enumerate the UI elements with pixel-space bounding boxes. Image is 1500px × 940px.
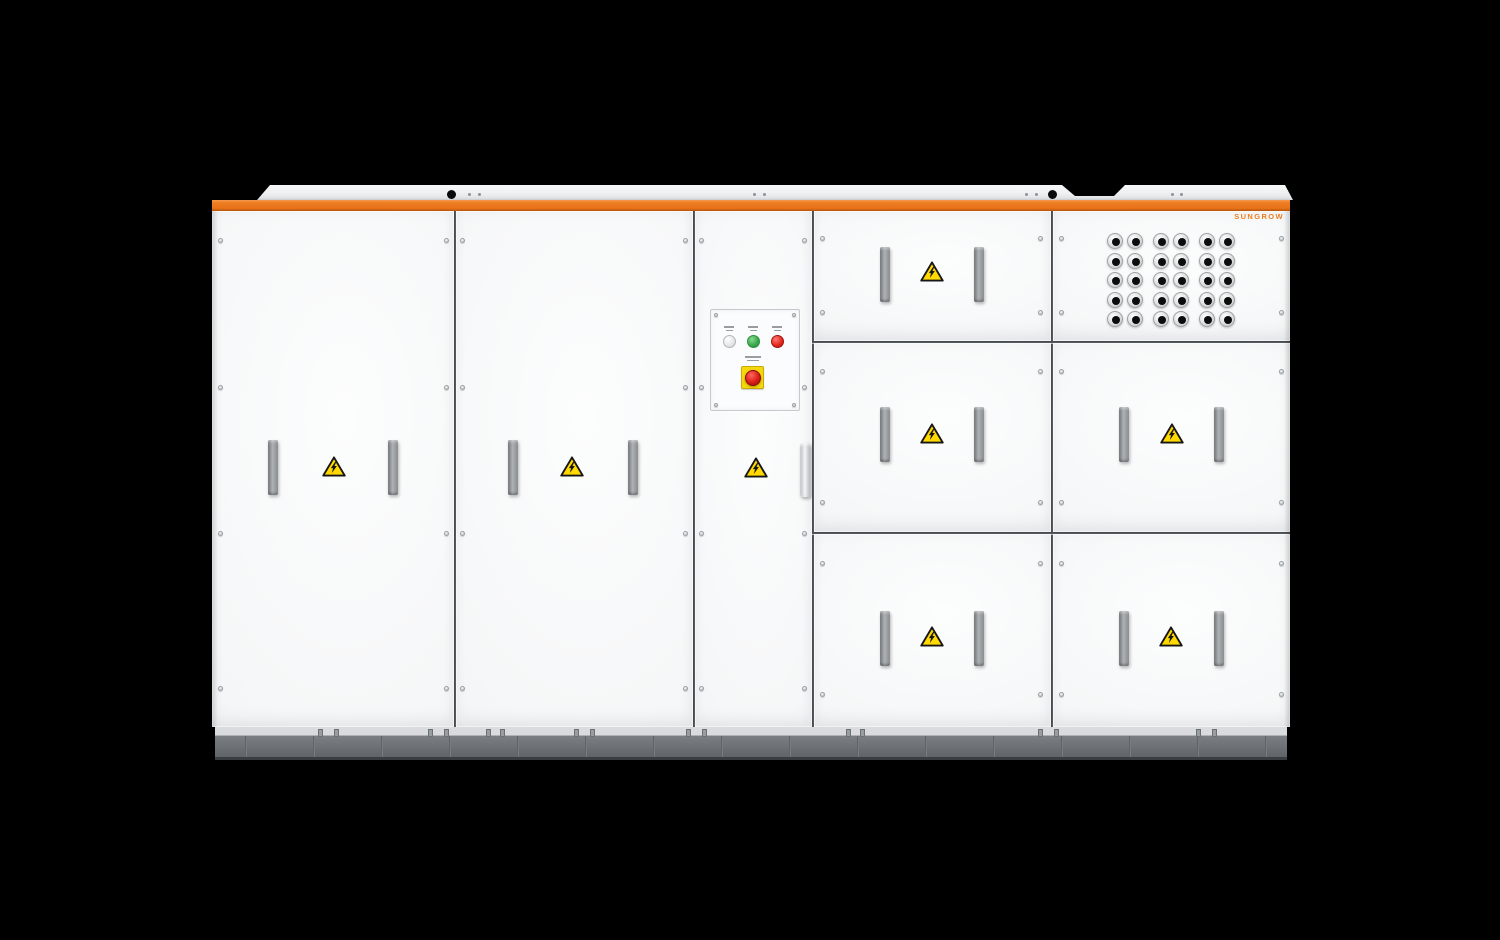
door-handle	[1214, 407, 1224, 462]
plinth-rib	[857, 736, 859, 757]
door-screw	[460, 531, 465, 536]
plinth-rib	[653, 736, 655, 757]
door-screw	[820, 561, 825, 566]
cable-gland	[1153, 233, 1169, 249]
cable-gland	[1199, 311, 1215, 327]
cable-gland-hole	[1158, 258, 1166, 266]
door-screw	[1038, 236, 1043, 241]
cable-gland	[1173, 253, 1189, 269]
cable-gland-hole	[1112, 277, 1120, 285]
lightning-bolt-icon	[920, 423, 944, 444]
cap-screw	[468, 193, 471, 196]
door-screw	[820, 310, 825, 315]
cable-gland	[1199, 292, 1215, 308]
cable-gland	[1219, 233, 1235, 249]
estop-label-microtext	[745, 356, 761, 358]
high-voltage-warning-sign	[744, 457, 768, 478]
high-voltage-warning-sign	[560, 456, 584, 477]
door-screw	[802, 686, 807, 691]
cable-gland-hole	[1132, 238, 1140, 246]
door-screw	[1059, 236, 1064, 241]
accent-stripe	[212, 200, 1290, 211]
door-screw	[683, 238, 688, 243]
product-render-stage: SUNGROW	[0, 0, 1500, 940]
control-panel-screw	[792, 403, 796, 407]
door-screw	[444, 531, 449, 536]
door-screw	[1059, 692, 1064, 697]
cable-gland	[1219, 253, 1235, 269]
door-seam-vertical	[693, 211, 695, 727]
indicator-label-microtext	[750, 330, 757, 331]
plinth-rib	[1197, 736, 1199, 757]
body-left-edge-shading	[212, 211, 218, 727]
door-seam-vertical	[812, 211, 814, 727]
cable-gland-hole	[1158, 297, 1166, 305]
cable-gland	[1219, 272, 1235, 288]
cap-screw	[1035, 193, 1038, 196]
door-screw	[820, 500, 825, 505]
cable-gland-hole	[1132, 258, 1140, 266]
control-panel-screw	[714, 313, 718, 317]
cap-screw	[753, 193, 756, 196]
door-seam-horizontal	[812, 532, 1290, 534]
door-screw	[1038, 561, 1043, 566]
door-screw	[218, 531, 223, 536]
cap-screw	[1180, 193, 1183, 196]
high-voltage-warning-sign	[1160, 423, 1184, 444]
plinth-rib	[993, 736, 995, 757]
door-screw	[820, 236, 825, 241]
lightning-bolt-icon	[560, 456, 584, 477]
indicator-label-microtext	[726, 330, 733, 331]
door-handle	[880, 611, 890, 666]
hinge-tab	[500, 729, 505, 737]
plinth-rib	[1129, 736, 1131, 757]
cable-gland-hole	[1204, 297, 1212, 305]
door-handle	[880, 247, 890, 302]
door-seam-horizontal	[812, 341, 1290, 343]
hinge-tab	[1038, 729, 1043, 737]
lifting-hole	[447, 190, 456, 199]
emergency-stop-button	[745, 370, 761, 386]
plinth-rib	[925, 736, 927, 757]
door-screw	[683, 385, 688, 390]
door-screw	[1038, 692, 1043, 697]
door-screw	[699, 686, 704, 691]
plinth-rib	[789, 736, 791, 757]
cable-gland-hole	[1112, 316, 1120, 324]
door-screw	[683, 686, 688, 691]
energy-storage-cabinet: SUNGROW	[0, 0, 1500, 940]
door-screw	[218, 385, 223, 390]
door-screw	[1038, 369, 1043, 374]
plinth-top-strip	[215, 727, 1287, 736]
plinth-rib	[313, 736, 315, 757]
door-screw	[218, 686, 223, 691]
door-screw	[820, 369, 825, 374]
door-latch-handle	[800, 443, 811, 497]
door-screw	[820, 692, 825, 697]
cable-gland-hole	[1178, 297, 1186, 305]
door-screw	[1059, 561, 1064, 566]
cable-gland-hole	[1224, 238, 1232, 246]
control-panel-screw	[792, 313, 796, 317]
cable-gland	[1153, 311, 1169, 327]
door-handle	[974, 407, 984, 462]
cable-gland	[1153, 292, 1169, 308]
cable-gland-hole	[1224, 297, 1232, 305]
door-seam-vertical	[454, 211, 456, 727]
cable-gland-hole	[1178, 258, 1186, 266]
roof-cap	[257, 185, 1293, 200]
base-plinth	[215, 736, 1287, 757]
lightning-bolt-icon	[744, 457, 768, 478]
indicator-label-microtext	[772, 326, 782, 328]
plinth-rib	[1061, 736, 1063, 757]
hinge-tab	[1054, 729, 1059, 737]
cable-gland	[1173, 233, 1189, 249]
door-handle	[1119, 407, 1129, 462]
cap-screw	[1025, 193, 1028, 196]
cap-screw	[763, 193, 766, 196]
cable-gland	[1107, 272, 1123, 288]
door-handle	[1119, 611, 1129, 666]
door-screw	[802, 531, 807, 536]
cable-gland	[1153, 253, 1169, 269]
high-voltage-warning-sign	[920, 626, 944, 647]
hinge-tab	[1212, 729, 1217, 737]
high-voltage-warning-sign	[920, 261, 944, 282]
hinge-tab	[590, 729, 595, 737]
cable-gland	[1219, 292, 1235, 308]
indicator-white	[723, 335, 736, 348]
cable-gland-hole	[1112, 297, 1120, 305]
door-screw	[444, 238, 449, 243]
lightning-bolt-icon	[322, 456, 346, 477]
plinth-rib	[585, 736, 587, 757]
brand-logo: SUNGROW	[1233, 212, 1284, 222]
cable-gland	[1127, 272, 1143, 288]
indicator-label-microtext	[748, 326, 758, 328]
plinth-rib	[721, 736, 723, 757]
cable-gland-hole	[1132, 277, 1140, 285]
hinge-tab	[846, 729, 851, 737]
door-screw	[218, 238, 223, 243]
cable-gland	[1107, 292, 1123, 308]
door-screw	[802, 238, 807, 243]
hinge-tab	[318, 729, 323, 737]
plinth-rib	[517, 736, 519, 757]
hinge-tab	[860, 729, 865, 737]
cable-gland	[1173, 311, 1189, 327]
cable-gland	[1127, 311, 1143, 327]
plinth-rib	[449, 736, 451, 757]
cable-gland-hole	[1132, 316, 1140, 324]
indicator-red	[771, 335, 784, 348]
door-screw	[1038, 500, 1043, 505]
cable-gland	[1199, 233, 1215, 249]
door-screw	[460, 385, 465, 390]
cable-gland	[1173, 292, 1189, 308]
cap-screw	[1171, 193, 1174, 196]
lightning-bolt-icon	[920, 261, 944, 282]
plinth-rib	[245, 736, 247, 757]
cable-gland-hole	[1204, 316, 1212, 324]
cable-gland	[1127, 292, 1143, 308]
cable-gland	[1153, 272, 1169, 288]
cable-gland-hole	[1204, 258, 1212, 266]
lightning-bolt-icon	[1160, 423, 1184, 444]
cable-gland-hole	[1204, 277, 1212, 285]
door-seam-vertical	[1051, 211, 1053, 727]
lifting-hole	[1048, 190, 1057, 199]
cable-gland-hole	[1178, 316, 1186, 324]
indicator-label-microtext	[774, 330, 781, 331]
door-screw	[444, 686, 449, 691]
high-voltage-warning-sign	[920, 423, 944, 444]
door-handle	[508, 440, 518, 495]
lightning-bolt-icon	[920, 626, 944, 647]
hinge-tab	[444, 729, 449, 737]
cable-gland	[1107, 311, 1123, 327]
right-top-gland-panel	[1051, 211, 1290, 341]
door-screw	[802, 385, 807, 390]
lightning-bolt-icon	[1159, 626, 1183, 647]
door-screw	[1059, 500, 1064, 505]
cable-gland-hole	[1204, 238, 1212, 246]
hinge-tab	[686, 729, 691, 737]
door-handle	[974, 611, 984, 666]
high-voltage-warning-sign	[322, 456, 346, 477]
body-right-edge-shading	[1284, 211, 1290, 727]
door-screw	[683, 531, 688, 536]
estop-label-microtext	[747, 360, 759, 361]
hinge-tab	[486, 729, 491, 737]
door-screw	[444, 385, 449, 390]
plinth-rib	[381, 736, 383, 757]
cable-gland-hole	[1112, 258, 1120, 266]
door-handle	[268, 440, 278, 495]
door-handle	[1214, 611, 1224, 666]
door-screw	[1059, 310, 1064, 315]
door-handle	[628, 440, 638, 495]
cable-gland	[1219, 311, 1235, 327]
cable-gland-hole	[1224, 258, 1232, 266]
cable-gland	[1173, 272, 1189, 288]
door-screw	[1059, 369, 1064, 374]
cable-gland-hole	[1178, 277, 1186, 285]
cable-gland	[1107, 253, 1123, 269]
cable-gland	[1107, 233, 1123, 249]
plinth-bottom-edge	[215, 757, 1287, 760]
door-screw	[1038, 310, 1043, 315]
door-screw	[460, 238, 465, 243]
cable-gland-hole	[1158, 238, 1166, 246]
hinge-tab	[702, 729, 707, 737]
door-screw	[699, 531, 704, 536]
indicator-green	[747, 335, 760, 348]
cable-gland-hole	[1132, 297, 1140, 305]
hinge-tab	[1196, 729, 1201, 737]
indicator-label-microtext	[724, 326, 734, 328]
hinge-tab	[574, 729, 579, 737]
cable-gland	[1199, 253, 1215, 269]
cable-gland	[1199, 272, 1215, 288]
cable-gland-hole	[1178, 238, 1186, 246]
control-panel-screw	[714, 403, 718, 407]
door-handle	[880, 407, 890, 462]
door-screw	[460, 686, 465, 691]
cable-gland-hole	[1112, 238, 1120, 246]
cable-gland-hole	[1224, 316, 1232, 324]
cable-gland-hole	[1158, 277, 1166, 285]
plinth-rib	[1265, 736, 1267, 757]
hinge-tab	[428, 729, 433, 737]
cable-gland	[1127, 253, 1143, 269]
door-screw	[699, 385, 704, 390]
door-handle	[388, 440, 398, 495]
hinge-tab	[334, 729, 339, 737]
door-handle	[974, 247, 984, 302]
door-screw	[699, 238, 704, 243]
cable-gland	[1127, 233, 1143, 249]
high-voltage-warning-sign	[1159, 626, 1183, 647]
cap-screw	[478, 193, 481, 196]
cable-gland-hole	[1224, 277, 1232, 285]
cable-gland-hole	[1158, 316, 1166, 324]
